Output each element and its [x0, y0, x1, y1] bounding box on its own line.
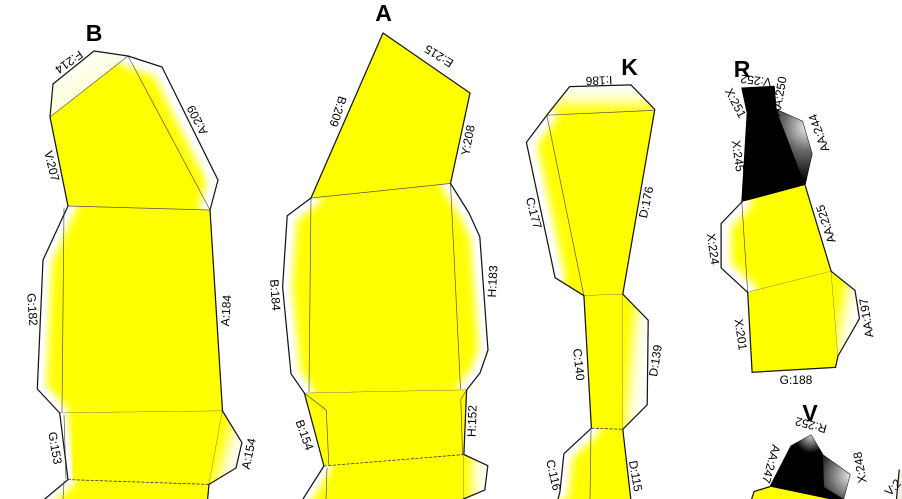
svg-text:I:186: I:186 — [585, 73, 612, 88]
svg-text:H:183: H:183 — [485, 265, 501, 298]
svg-text:B: B — [86, 20, 103, 46]
svg-text:H:152: H:152 — [465, 404, 480, 437]
svg-text:A: A — [375, 0, 392, 26]
svg-text:A:184: A:184 — [218, 294, 234, 327]
svg-text:G:188: G:188 — [780, 373, 813, 387]
svg-text:B:184: B:184 — [267, 279, 283, 312]
svg-text:G:182: G:182 — [24, 293, 40, 327]
svg-text:K: K — [621, 54, 638, 80]
